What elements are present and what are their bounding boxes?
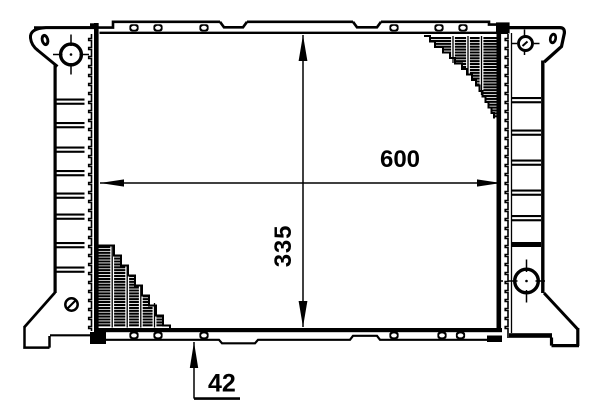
svg-text:600: 600 [380,146,420,173]
svg-text:335: 335 [270,225,297,267]
svg-text:42: 42 [208,370,236,398]
